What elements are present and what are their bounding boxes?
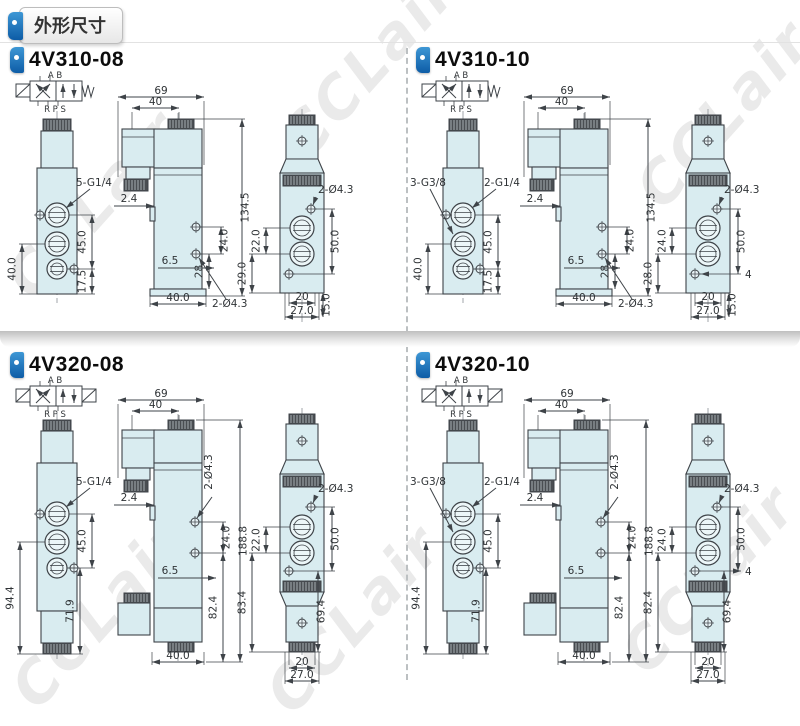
- dim-text: 188.8: [238, 526, 250, 556]
- dim-text: 2.4: [121, 193, 138, 205]
- dim-text: 24.0: [657, 229, 669, 252]
- page-title: 外形尺寸: [19, 7, 123, 44]
- dim-text: 2.4: [527, 193, 544, 205]
- dim-text: R P S: [44, 410, 66, 420]
- dim-text: R P S: [450, 105, 472, 115]
- catalog-page: { "header": { "title": "外形尺寸" }, "waterm…: [0, 0, 800, 688]
- side-view: 69402.42-Ø4.324.082.4188.86.540.0: [114, 388, 250, 665]
- dim-text: 2-Ø4.3: [203, 454, 215, 489]
- dim-text: 20: [701, 291, 714, 303]
- dim-text: R P S: [450, 410, 472, 420]
- dim-text: 2-Ø4.3: [724, 483, 759, 495]
- back-view: 2-Ø4.322.083.450.069.42027.0: [237, 408, 354, 684]
- valve-schematic-icon: A BR P S: [16, 376, 96, 420]
- side-view: 69402.4134.524.0286.540.02-Ø4.3: [520, 85, 658, 310]
- section-header: 4V310-10: [416, 47, 530, 73]
- dim-text: 83.4: [237, 590, 249, 614]
- dim-text: 4: [745, 566, 752, 578]
- dim-text: 40.0: [166, 650, 189, 662]
- dim-text: 20: [295, 291, 308, 303]
- back-view: 2-Ø4.324.082.450.069.442027.0: [643, 408, 760, 684]
- side-view: 69402.42-Ø4.324.082.4188.86.540.0: [520, 388, 656, 665]
- dim-text: 2.4: [121, 492, 138, 504]
- dim-text: 71.9: [471, 599, 483, 622]
- dim-text: 28.0: [643, 262, 655, 285]
- valve-schematic-icon: A BR P S: [422, 71, 500, 115]
- dim-text: 71.9: [65, 599, 77, 622]
- front-view: 5-G1/494.445.071.9: [5, 412, 113, 660]
- dim-text: 5-G1/4: [76, 177, 112, 189]
- dim-text: 40.0: [413, 257, 425, 280]
- dim-text: 2-Ø4.3: [724, 184, 759, 196]
- dim-text: 17.5: [77, 270, 89, 293]
- dimension-drawing: A BR P S5-G1/494.445.071.969402.42-Ø4.32…: [2, 350, 394, 688]
- row-divider: [0, 331, 800, 347]
- dim-text: 2-Ø4.3: [318, 483, 353, 495]
- dim-text: 94.4: [411, 586, 423, 610]
- back-view: 2-Ø4.322.029.050.015.02027.0: [237, 109, 354, 325]
- dim-text: 6.5: [162, 565, 179, 577]
- dim-text: 40.0: [572, 292, 595, 304]
- dim-text: 3-G3/8: [410, 177, 446, 189]
- dim-text: 22.0: [251, 528, 263, 551]
- dim-text: 40.0: [572, 650, 595, 662]
- dim-text: 4: [745, 269, 752, 281]
- dim-text: 40.0: [7, 257, 19, 280]
- dim-text: 50.0: [330, 230, 342, 253]
- dimension-drawing: A BR P S5-G1/440.045.017.569402.4134.524…: [2, 45, 394, 331]
- section-tab-icon: [416, 47, 430, 73]
- dim-text: 5-G1/4: [76, 476, 112, 488]
- dim-text: 94.4: [5, 586, 17, 610]
- dim-text: 2-Ø4.3: [618, 298, 653, 310]
- dim-text: 24.0: [657, 528, 669, 551]
- dim-text: 40: [149, 399, 162, 411]
- section-4v320-10: 4V320-10 A BR P S3-G3/82-G1/494.445.071.…: [408, 350, 800, 688]
- dim-text: 28: [194, 265, 206, 278]
- valve-schematic-icon: A BR P S: [422, 376, 502, 420]
- section-4v310-08: 4V310-08 A BR P S5-G1/440.045.017.569402…: [2, 45, 394, 331]
- dimension-drawing: A BR P S3-G3/82-G1/494.445.071.969402.42…: [408, 350, 800, 688]
- section-header: 4V310-08: [10, 47, 124, 73]
- dim-text: 20: [701, 656, 714, 668]
- front-view: 5-G1/440.045.017.5: [7, 111, 113, 303]
- dim-text: 6.5: [568, 255, 585, 267]
- dim-text: 45.0: [77, 230, 89, 253]
- section-header: 4V320-10: [416, 352, 530, 378]
- dim-text: 2-Ø4.3: [609, 454, 621, 489]
- front-view: 3-G3/82-G1/494.445.071.9: [410, 412, 520, 660]
- dimension-drawing: A BR P S3-G3/82-G1/440.045.017.569402.41…: [408, 45, 800, 331]
- dim-text: 188.8: [644, 526, 656, 556]
- dim-text: 45.0: [77, 529, 89, 552]
- dim-text: 40: [555, 399, 568, 411]
- dim-text: R P S: [44, 105, 66, 115]
- dim-text: 2.4: [527, 492, 544, 504]
- dim-text: 50.0: [736, 230, 748, 253]
- model-label: 4V320-08: [29, 353, 124, 377]
- dim-text: 6.5: [162, 255, 179, 267]
- dim-text: 2-G1/4: [484, 476, 520, 488]
- dim-text: 24.0: [219, 229, 231, 252]
- dim-text: 134.5: [240, 192, 252, 222]
- dim-text: 40: [555, 96, 568, 108]
- section-tab-icon: [416, 352, 430, 378]
- dim-text: 82.4: [208, 595, 220, 619]
- dim-text: 28: [600, 265, 612, 278]
- back-view: 2-Ø4.324.028.050.0415.02027.0: [643, 109, 760, 325]
- dim-text: 15.0: [321, 293, 333, 316]
- dim-text: 45.0: [483, 230, 495, 253]
- dim-text: 24.0: [627, 526, 639, 549]
- front-view: 3-G3/82-G1/440.045.017.5: [410, 111, 520, 303]
- dim-text: 50.0: [736, 527, 748, 550]
- dim-text: 69.4: [722, 599, 734, 623]
- section-tab-icon: [10, 352, 24, 378]
- dim-text: 134.5: [646, 192, 658, 222]
- section-tab-icon: [10, 47, 24, 73]
- dim-text: 27.0: [290, 669, 313, 681]
- dim-text: 24.0: [221, 526, 233, 549]
- model-label: 4V310-10: [435, 48, 530, 72]
- dim-text: 45.0: [483, 529, 495, 552]
- dim-text: 27.0: [290, 305, 313, 317]
- header-tab-icon: [8, 12, 23, 40]
- dim-text: 27.0: [696, 669, 719, 681]
- section-header: 4V320-08: [10, 352, 124, 378]
- dim-text: 3-G3/8: [410, 476, 446, 488]
- model-label: 4V310-08: [29, 48, 124, 72]
- section-4v310-10: 4V310-10 A BR P S3-G3/82-G1/440.045.017.…: [408, 45, 800, 331]
- dim-text: 50.0: [330, 527, 342, 550]
- valve-schematic-icon: A BR P S: [16, 71, 94, 115]
- dim-text: 40: [149, 96, 162, 108]
- model-label: 4V320-10: [435, 353, 530, 377]
- dim-text: 15.0: [727, 293, 739, 316]
- dim-text: 2-Ø4.3: [318, 184, 353, 196]
- page-header: 外形尺寸: [8, 7, 123, 44]
- section-4v320-08: 4V320-08 A BR P S5-G1/494.445.071.969402…: [2, 350, 394, 688]
- dim-text: 82.4: [643, 590, 655, 614]
- dim-text: 6.5: [568, 565, 585, 577]
- dim-text: 29.0: [237, 262, 249, 285]
- dim-text: 27.0: [696, 305, 719, 317]
- dim-text: 2-Ø4.3: [212, 298, 247, 310]
- dim-text: 22.0: [251, 229, 263, 252]
- dim-text: 20: [295, 656, 308, 668]
- dim-text: 40.0: [166, 292, 189, 304]
- dim-text: 69.4: [316, 599, 328, 623]
- dim-text: 17.5: [483, 270, 495, 293]
- dim-text: 24.0: [625, 229, 637, 252]
- dim-text: 82.4: [614, 595, 626, 619]
- dim-text: 2-G1/4: [484, 177, 520, 189]
- side-view: 69402.4134.524.0286.540.02-Ø4.3: [114, 85, 252, 310]
